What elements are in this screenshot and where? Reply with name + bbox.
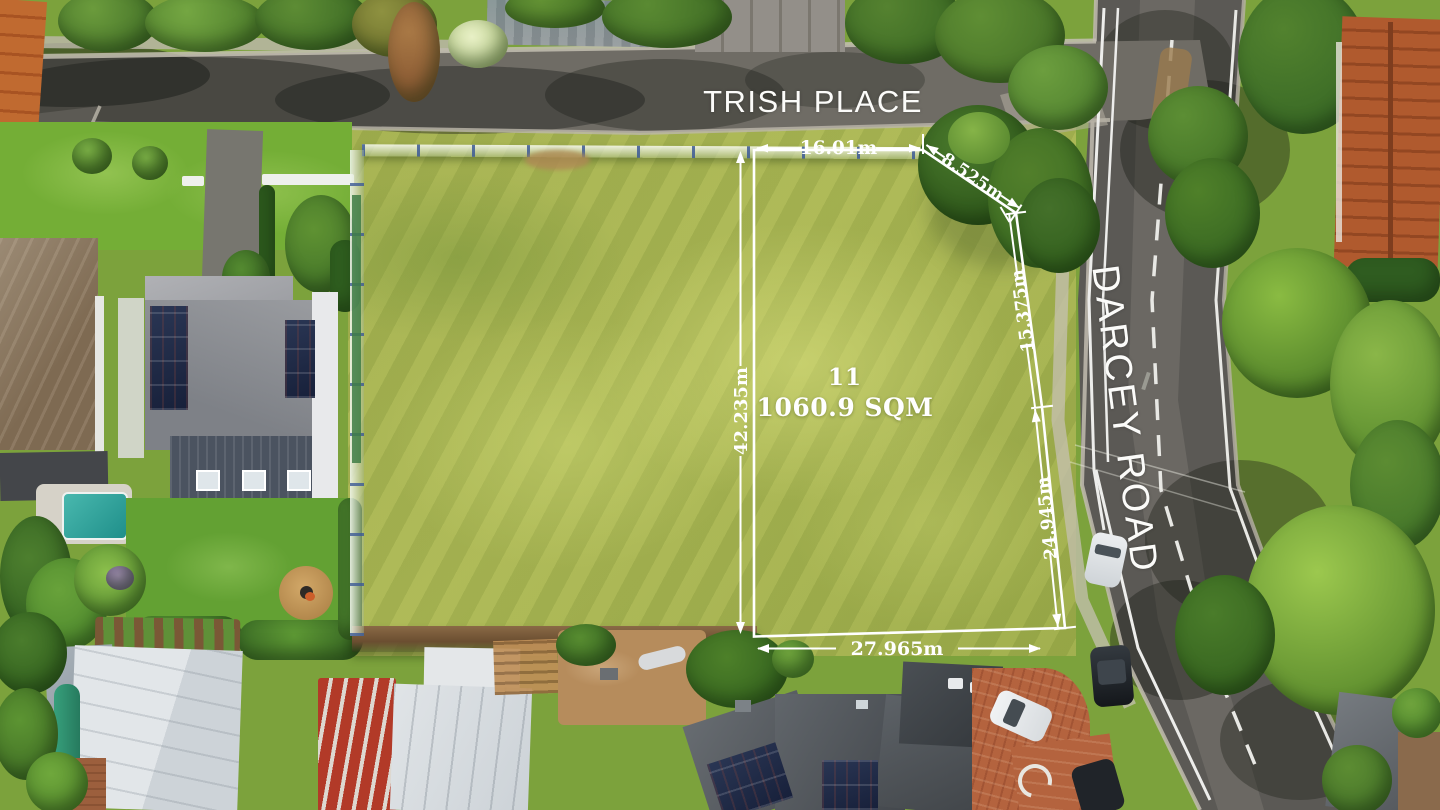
dimension-bottom: 27.965m [851, 638, 944, 660]
survey-overlay: 16.01m 8.525m 15.375m 24.945m 42.235m 27… [0, 0, 1440, 810]
aerial-property-photo: TRISH PLACE DARCEY ROAD 11 1060.9 SQM [0, 0, 1440, 810]
lot-boundary [754, 150, 1065, 637]
dimension-top: 16.01m [800, 138, 878, 159]
dimension-right-upper: 15.375m [1008, 268, 1039, 353]
dimension-right-lower: 24.945m [1033, 476, 1061, 561]
dimension-left: 42.235m [731, 367, 752, 455]
dimension-splay: 8.525m [937, 149, 1007, 205]
